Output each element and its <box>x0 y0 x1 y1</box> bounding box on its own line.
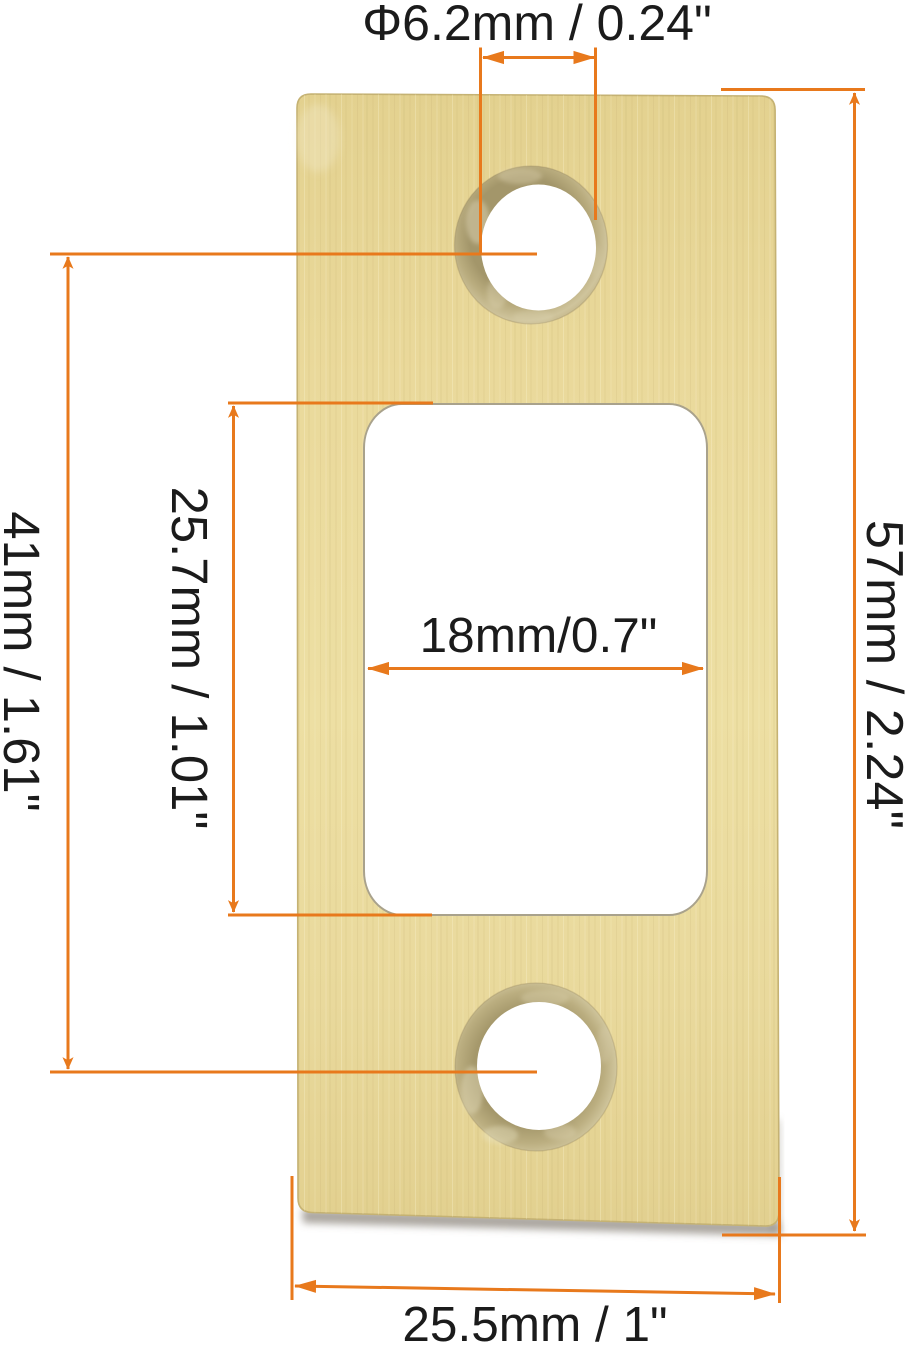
svg-text:18mm/0.7": 18mm/0.7" <box>420 608 658 663</box>
svg-text:Φ6.2mm / 0.24": Φ6.2mm / 0.24" <box>362 0 711 51</box>
svg-text:25.5mm / 1": 25.5mm / 1" <box>402 1297 667 1345</box>
svg-text:41mm / 1.61": 41mm / 1.61" <box>0 511 50 811</box>
svg-text:57mm / 2.24": 57mm / 2.24" <box>855 520 911 829</box>
svg-text:25.7mm / 1.01": 25.7mm / 1.01" <box>161 487 218 830</box>
